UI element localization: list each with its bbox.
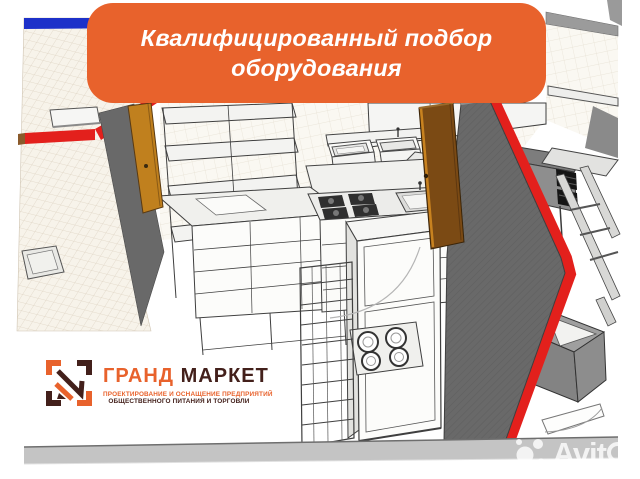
brand-title-market: МАРКЕТ [174, 365, 269, 387]
brand-subtitle-line-2: ОБЩЕСТВЕННОГО ПИТАНИЯ И ТОРГОВЛИ [103, 398, 255, 405]
banner-line-2: оборудования [231, 53, 402, 83]
open-door-panel [542, 404, 604, 434]
brand-logo-mark-icon [45, 359, 93, 407]
left-door-edge [18, 133, 25, 145]
promo-banner: Квалифицированный подбор оборудования [87, 3, 546, 103]
avito-letter-o-outline [607, 442, 628, 463]
avito-watermark-text: Avit [553, 438, 606, 469]
banner-line-1: Квалифицированный подбор [141, 23, 493, 53]
door-handle [424, 174, 428, 178]
brand-subtitle: ПРОЕКТИРОВАНИЕ И ОСНАЩЕНИЕ ПРЕДПРИЯТИЙ О… [103, 391, 255, 405]
avito-dots-icon [514, 436, 550, 470]
right-back-wall [546, 0, 622, 158]
faucet [396, 127, 399, 130]
brand-logo: ГРАНД МАРКЕТ ПРОЕКТИРОВАНИЕ И ОСНАЩЕНИЕ … [45, 359, 269, 407]
brand-title-grand: ГРАНД [103, 365, 174, 387]
brand-logo-text: ГРАНД МАРКЕТ ПРОЕКТИРОВАНИЕ И ОСНАЩЕНИЕ … [103, 359, 269, 405]
brand-title: ГРАНД МАРКЕТ [103, 365, 269, 388]
burner-stand [350, 322, 423, 375]
brand-subtitle-line-1: ПРОЕКТИРОВАНИЕ И ОСНАЩЕНИЕ ПРЕДПРИЯТИЙ [103, 391, 255, 398]
avito-watermark: Avit [514, 436, 628, 470]
big-gray-wall [444, 99, 565, 442]
door-handle [144, 164, 148, 168]
bracket-top-right [77, 363, 89, 375]
